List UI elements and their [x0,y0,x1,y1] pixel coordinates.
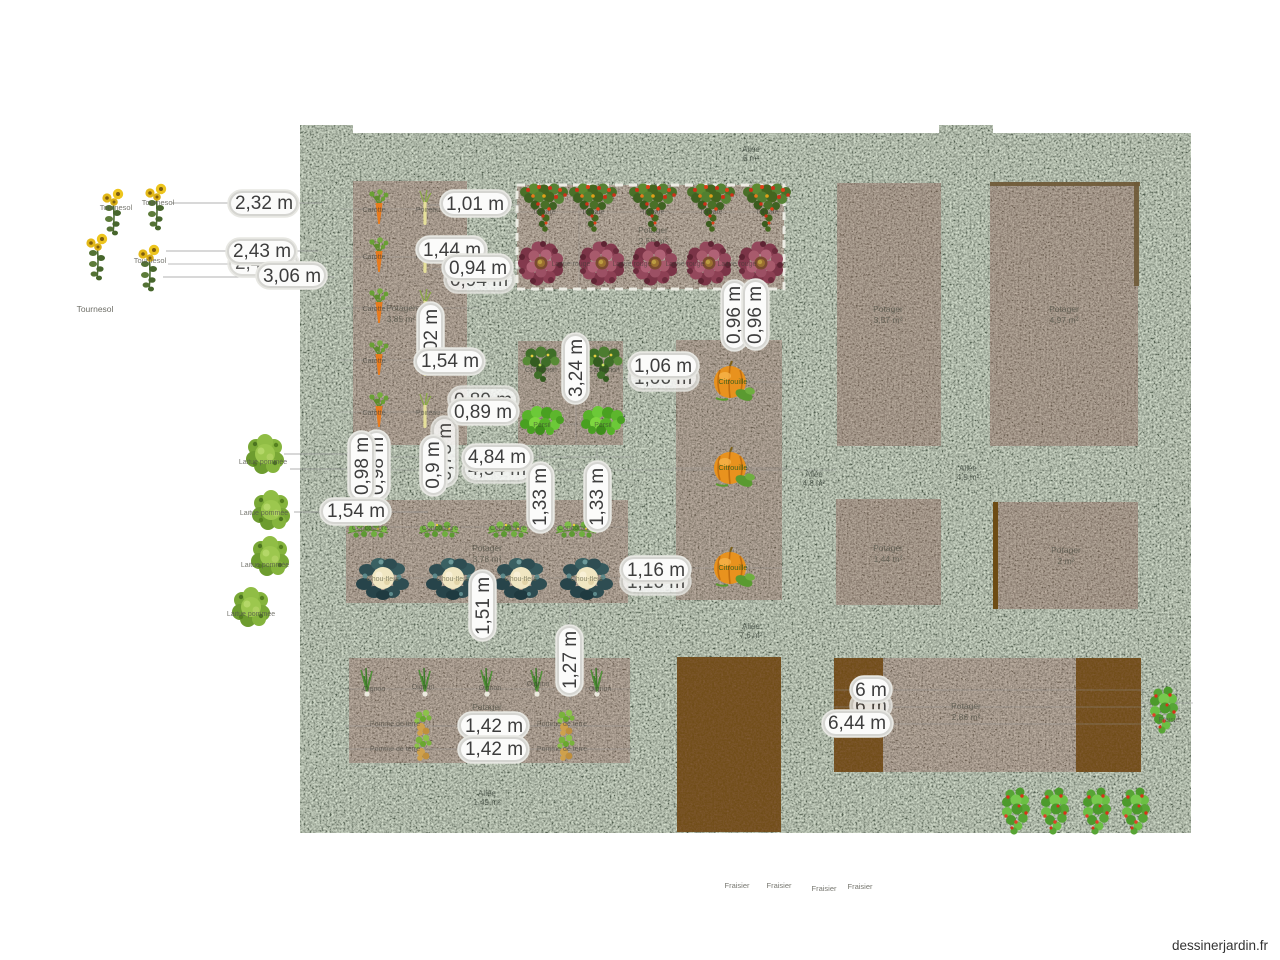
svg-text:Chou-fleur: Chou-fleur [571,576,604,583]
svg-text:0,9 m: 0,9 m [423,441,444,489]
svg-text:Cornichon: Cornichon [525,367,557,374]
svg-text:3,78 m²: 3,78 m² [473,554,502,564]
svg-text:Allée: Allée [959,464,977,473]
svg-text:Citrouille: Citrouille [718,463,747,472]
svg-text:Tomate: Tomate [700,209,723,216]
svg-text:Potager: Potager [472,702,502,712]
svg-text:Tournesol: Tournesol [142,198,175,207]
svg-text:1,33 m: 1,33 m [587,468,608,526]
svg-text:Oignon: Oignon [479,685,502,692]
svg-text:1,01 m: 1,01 m [446,194,504,215]
svg-text:Tournesol: Tournesol [100,203,133,212]
svg-text:3,06 m: 3,06 m [263,266,321,287]
svg-text:Citrouille: Citrouille [718,563,747,572]
svg-text:1,16 m: 1,16 m [627,560,685,581]
svg-text:Allée: Allée [742,145,760,154]
svg-text:Laitue pommée: Laitue pommée [241,562,289,569]
svg-text:Potager: Potager [873,543,903,553]
svg-text:Laitue pommée: Laitue pommée [239,459,287,466]
svg-text:Laitue rouge: Laitue rouge [666,261,705,268]
svg-text:Carotte: Carotte [363,254,386,261]
svg-text:Potager: Potager [873,304,903,314]
svg-text:Fraisier: Fraisier [766,881,792,890]
svg-text:Fraisier: Fraisier [811,884,837,893]
svg-text:4,8 m²: 4,8 m² [803,479,826,488]
svg-text:1,06 m: 1,06 m [634,356,692,377]
svg-text:Chou-fleur: Chou-fleur [437,576,470,583]
svg-text:Carotte: Carotte [363,207,386,214]
svg-text:Fraisier: Fraisier [847,882,873,891]
svg-text:Pomme de terre: Pomme de terre [537,746,587,753]
svg-text:1,54 m: 1,54 m [421,351,479,372]
svg-text:4,84 m: 4,84 m [468,447,526,468]
svg-text:2,32 m: 2,32 m [235,193,293,214]
svg-text:Carotte: Carotte [363,306,386,313]
svg-text:3,85 m²: 3,85 m² [387,314,416,324]
svg-text:Tournesol: Tournesol [134,256,167,265]
svg-text:1,27 m: 1,27 m [560,631,581,689]
svg-text:Cornichon: Cornichon [588,367,620,374]
svg-text:Fraisier: Fraisier [1158,717,1182,724]
svg-text:6 m: 6 m [855,680,887,701]
svg-text:Tomate: Tomate [642,209,665,216]
svg-text:Tomate: Tomate [533,209,556,216]
svg-text:2,43 m: 2,43 m [233,241,291,262]
svg-text:Potager: Potager [386,303,416,313]
svg-text:Allée: Allée [478,789,496,798]
svg-text:7,6 m²: 7,6 m² [740,631,763,640]
svg-text:Laitue rouge: Laitue rouge [718,261,757,268]
svg-text:2,86 m²: 2,86 m² [952,712,981,722]
svg-text:Potager: Potager [951,701,981,711]
svg-text:1,54 m: 1,54 m [327,501,385,522]
svg-text:Laitue pommée: Laitue pommée [240,510,288,517]
svg-text:6,44 m: 6,44 m [828,713,886,734]
svg-text:Concombre: Concombre [490,525,526,532]
svg-text:Oignon: Oignon [527,681,550,688]
svg-text:1,51 m: 1,51 m [473,577,494,635]
svg-text:Chou-fleur: Chou-fleur [505,576,538,583]
svg-text:0,94 m: 0,94 m [449,258,507,279]
svg-text:6 m²: 6 m² [743,154,759,163]
svg-text:Allée: Allée [805,470,823,479]
svg-text:1,44 m²: 1,44 m² [874,554,903,564]
svg-text:Poireau: Poireau [416,207,440,214]
svg-text:Citrouille: Citrouille [718,377,747,386]
svg-text:1,33 m: 1,33 m [530,468,551,526]
svg-text:Persil: Persil [533,422,551,429]
svg-text:Allée: Allée [742,622,760,631]
svg-text:4,97 m²: 4,97 m² [1050,315,1079,325]
svg-text:0,89 m: 0,89 m [454,402,512,423]
svg-text:Laitue rouge: Laitue rouge [552,261,591,268]
svg-text:Oignon: Oignon [589,686,612,693]
svg-text:3,24 m: 3,24 m [566,339,587,397]
svg-text:0,96 m: 0,96 m [745,286,766,344]
svg-text:Pomme de terre: Pomme de terre [370,721,420,728]
svg-text:3,57 m²: 3,57 m² [874,315,903,325]
svg-text:Potager: Potager [1049,304,1079,314]
svg-text:Tomate: Tomate [756,209,779,216]
svg-text:Chou-fleur: Chou-fleur [367,576,400,583]
svg-text:Concombre: Concombre [352,525,388,532]
svg-text:Fraisier: Fraisier [724,881,750,890]
svg-text:Carotte: Carotte [363,358,386,365]
svg-text:4,9 m²: 4,9 m² [957,473,980,482]
svg-text:1,49 m²: 1,49 m² [473,798,500,807]
svg-text:Poireau: Poireau [416,410,440,417]
svg-text:Laitue pommée: Laitue pommée [227,611,275,618]
svg-text:Pomme de terre: Pomme de terre [537,721,587,728]
svg-text:Carotte: Carotte [363,410,386,417]
svg-text:dessinerjardin.fr: dessinerjardin.fr [1172,938,1269,953]
svg-text:1,42 m: 1,42 m [465,739,523,760]
svg-text:2 m²: 2 m² [1058,556,1075,566]
svg-text:Tournesol: Tournesol [77,304,114,314]
svg-text:0,98 m: 0,98 m [352,437,373,495]
svg-text:Pomme de terre: Pomme de terre [370,746,420,753]
svg-text:Persil: Persil [594,422,612,429]
svg-text:1,42 m: 1,42 m [465,716,523,737]
svg-text:Potager: Potager [1051,545,1081,555]
svg-text:Oignon: Oignon [363,686,386,693]
svg-text:Laitue rouge: Laitue rouge [613,261,652,268]
svg-text:Tomate: Tomate [582,209,605,216]
svg-text:Oignon: Oignon [412,684,435,691]
svg-text:Potager: Potager [472,543,502,553]
svg-text:Concombre: Concombre [422,525,458,532]
